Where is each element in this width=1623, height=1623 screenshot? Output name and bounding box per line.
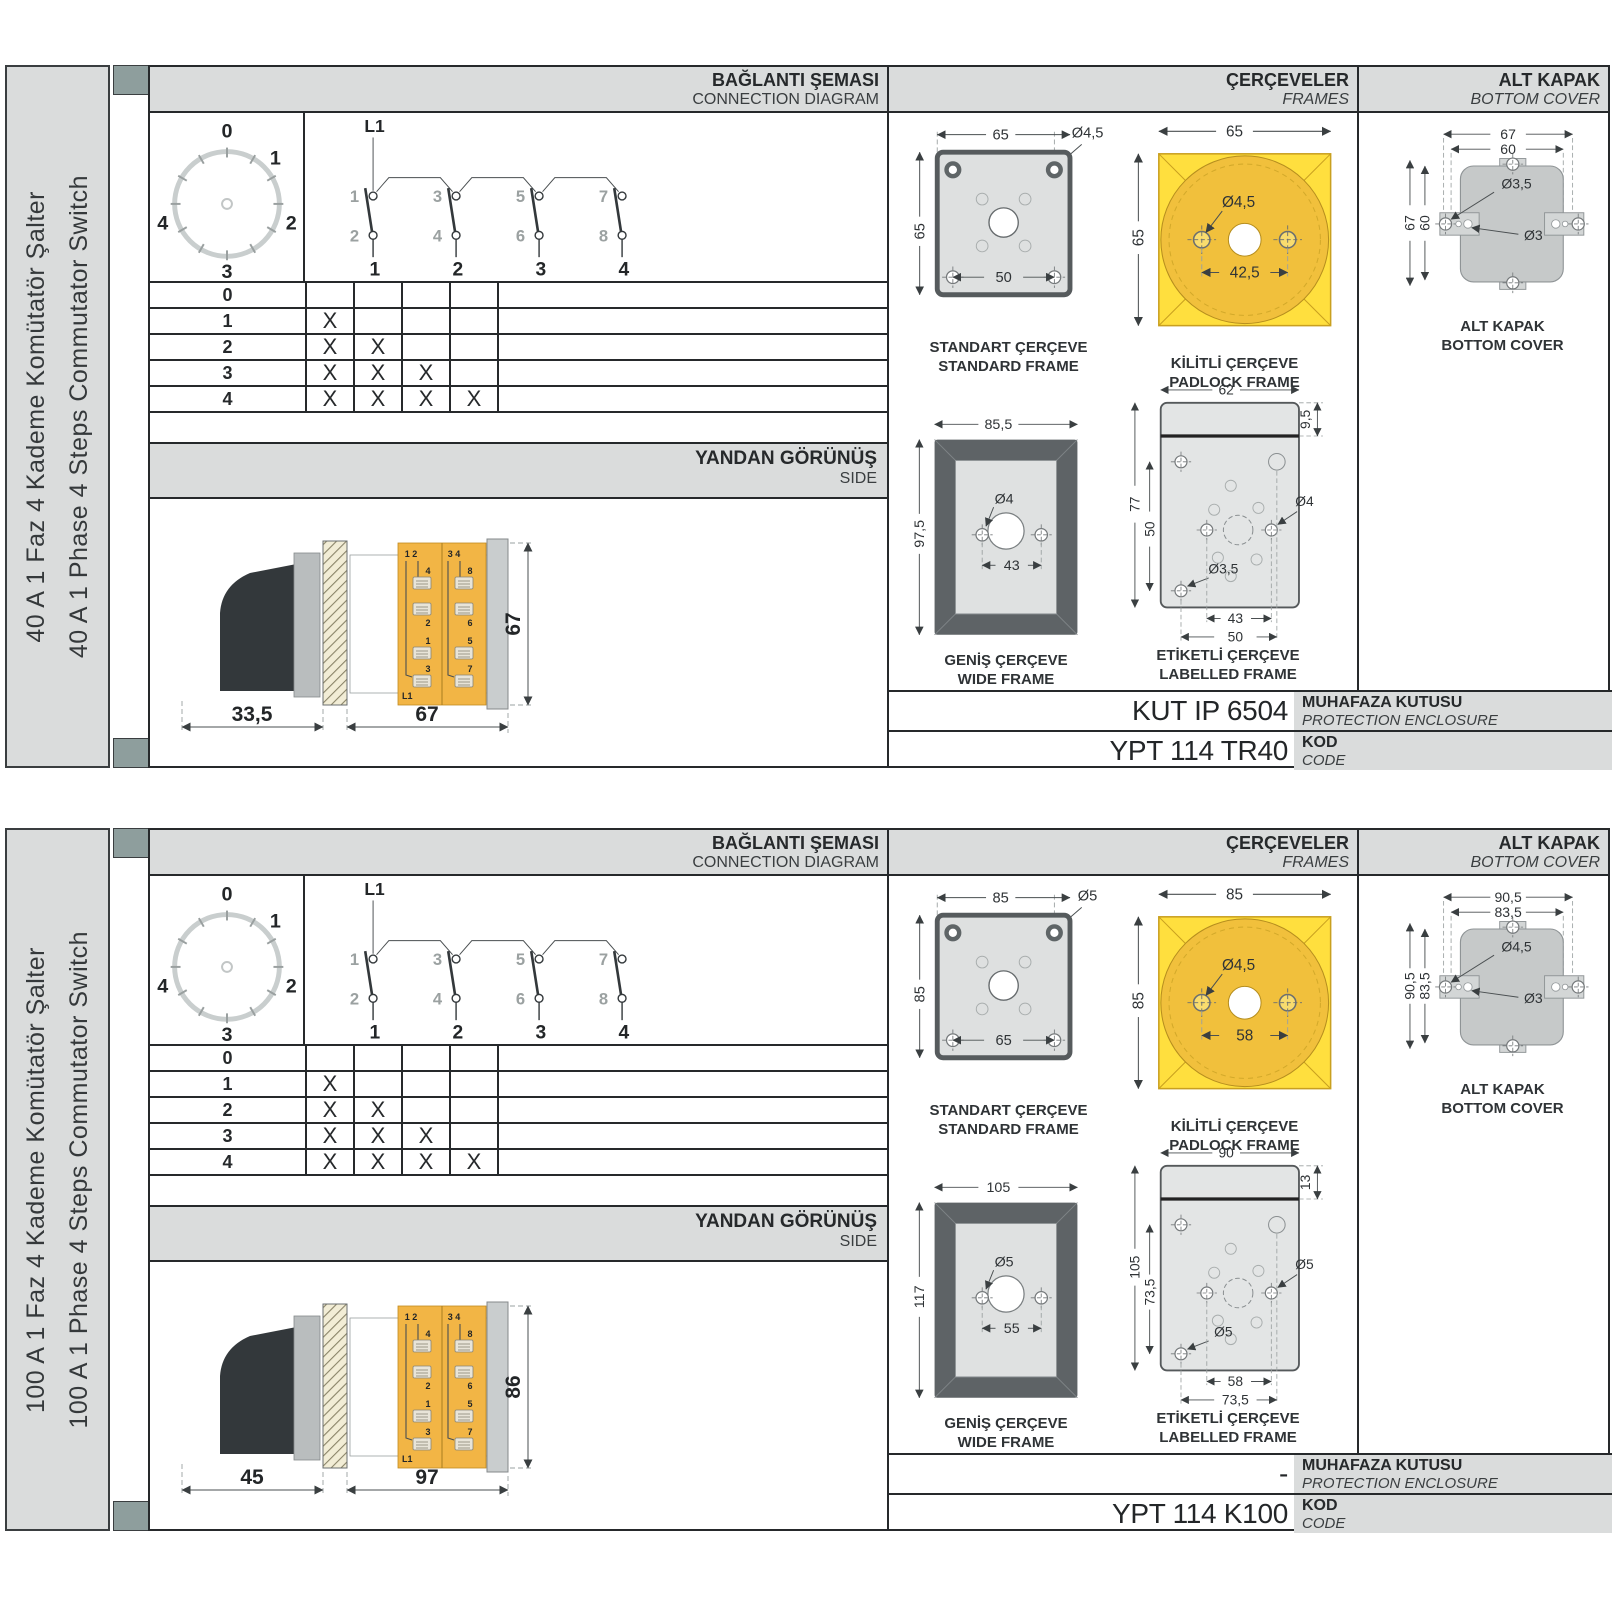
dial-pos-1: 1 xyxy=(269,147,280,169)
table-row: 0 xyxy=(150,283,887,309)
column-divider-right xyxy=(1357,67,1359,690)
product-title-tr: 40 A 1 Faz 4 Kademe Komütatör Şalter xyxy=(22,191,51,643)
contact-5: 5 xyxy=(516,187,525,206)
side-view-drawing: 1 2 3 4 4 2 1 3 8 6 5 7 L1 xyxy=(164,505,764,767)
enclosure-value: - xyxy=(887,1455,1294,1493)
mark-cell: X xyxy=(401,1124,449,1148)
pad-dim-height: 65 xyxy=(1130,229,1147,246)
pad-hole-label: Ø4,5 xyxy=(1222,194,1255,211)
side-dim-handle: 33,5 xyxy=(232,703,273,726)
wide-frame-caption: GENİŞ ÇERÇEVE WIDE FRAME xyxy=(906,651,1106,689)
code-label-tr: KOD xyxy=(1302,733,1612,752)
header-bottom-cover: ALT KAPAK BOTTOM COVER xyxy=(1357,830,1608,874)
enclosure-value: KUT IP 6504 xyxy=(887,692,1294,730)
standard-frame-caption-tr: STANDART ÇERÇEVE xyxy=(906,338,1111,357)
dial-pos-1: 1 xyxy=(269,910,280,932)
pole-2: 2 xyxy=(452,1023,463,1042)
position-label: 3 xyxy=(150,1124,305,1148)
side-dim-handle: 45 xyxy=(240,1466,264,1489)
position-label: 1 xyxy=(150,309,305,333)
terminal-2: 2 xyxy=(425,618,430,628)
header-frames-en: FRAMES xyxy=(889,91,1349,109)
mark-cell: X xyxy=(353,1150,401,1174)
header-frames-tr: ÇERÇEVELER xyxy=(889,833,1349,854)
contact-4: 4 xyxy=(433,226,443,245)
filler-cell xyxy=(497,387,887,411)
product-title-tr: 100 A 1 Faz 4 Kademe Komütatör Şalter xyxy=(22,947,51,1413)
terminal-l1: L1 xyxy=(402,1454,413,1464)
contact-source-label: L1 xyxy=(364,879,385,899)
labelled-frame-caption: ETİKETLİ ÇERÇEVE LABELLED FRAME xyxy=(1122,1409,1334,1447)
catalog-page: 40 A 1 Faz 4 Kademe Komütatör Şalter 40 … xyxy=(0,0,1623,1623)
datasheet-grid: BAĞLANTI ŞEMASI CONNECTION DIAGRAM ÇERÇE… xyxy=(148,828,1610,1531)
header-connection-diagram: BAĞLANTI ŞEMASI CONNECTION DIAGRAM xyxy=(150,67,887,111)
position-label: 4 xyxy=(150,1150,305,1174)
code-label-tr: KOD xyxy=(1302,1496,1612,1515)
mark-cell: X xyxy=(401,387,449,411)
table-row: 4 X X X X xyxy=(150,387,887,413)
enclosure-label-tr: MUHAFAZA KUTUSU xyxy=(1302,1456,1612,1475)
mark-cell xyxy=(449,309,497,333)
pole-1: 1 xyxy=(369,1023,380,1042)
std-dim-width: 65 xyxy=(993,128,1009,144)
mark-cell xyxy=(449,335,497,359)
bc-dim-h2: 83,5 xyxy=(1417,972,1433,999)
side-view-drawing: 1 2 3 4 4 2 1 3 8 6 5 7 L1 xyxy=(164,1268,764,1530)
wide-frame-caption-en: WIDE FRAME xyxy=(906,1433,1106,1452)
binding-square-top xyxy=(113,65,151,95)
terminal-4: 4 xyxy=(425,1329,430,1339)
header-cover-en: BOTTOM COVER xyxy=(1359,91,1600,109)
mark-cell: X xyxy=(353,1098,401,1122)
mark-cell: X xyxy=(353,361,401,385)
bottom-cover-caption: ALT KAPAK BOTTOM COVER xyxy=(1395,1080,1610,1118)
pole-1: 1 xyxy=(369,260,380,279)
switch-dial-cell: 0 1 2 3 4 xyxy=(150,876,305,1044)
lab-dim-inner-height: 50 xyxy=(1141,521,1157,537)
table-row: 2 X X xyxy=(150,335,887,361)
switch-dial-cell: 0 1 2 3 4 xyxy=(150,113,305,281)
header-cover-tr: ALT KAPAK xyxy=(1359,833,1600,854)
contact-diagram: L1 xyxy=(319,113,864,279)
bc-dim-h1: 67 xyxy=(1402,215,1418,231)
terminal-l1: L1 xyxy=(402,691,413,701)
table-row: 1 X xyxy=(150,1072,887,1098)
mark-cell xyxy=(401,309,449,333)
wide-dim-width: 105 xyxy=(986,1180,1010,1196)
position-table: 0 1 X 2 X X xyxy=(150,1046,887,1176)
standard-frame-caption-en: STANDARD FRAME xyxy=(906,1120,1111,1139)
mark-cell xyxy=(353,1072,401,1096)
terminal-6: 6 xyxy=(467,1381,472,1391)
figure-bottom-cover: 67 60 67 60 xyxy=(1395,123,1610,355)
contact-7: 7 xyxy=(599,187,608,206)
mark-cell xyxy=(353,283,401,307)
connection-diagram-row: 0 1 2 3 4 L1 xyxy=(150,876,887,1046)
product-panel: 40 A 1 Faz 4 Kademe Komütatör Şalter 40 … xyxy=(5,65,1605,768)
pad-dim-width: 65 xyxy=(1226,123,1243,140)
labelled-frame-caption-tr: ETİKETLİ ÇERÇEVE xyxy=(1122,1409,1334,1428)
mark-cell xyxy=(401,335,449,359)
contact-1: 1 xyxy=(350,187,359,206)
contact-8: 8 xyxy=(599,989,608,1008)
contact-6: 6 xyxy=(516,989,525,1008)
enclosure-label-en: PROTECTION ENCLOSURE xyxy=(1302,712,1612,729)
position-label: 0 xyxy=(150,1046,305,1070)
side-dim-height: 67 xyxy=(502,612,525,635)
dial-pos-0: 0 xyxy=(221,884,232,906)
table-row: 3 X X X xyxy=(150,1124,887,1150)
mark-cell: X xyxy=(305,1098,353,1122)
bc-dim-h2: 60 xyxy=(1417,215,1433,231)
mark-cell xyxy=(449,1046,497,1070)
header-connection-tr: BAĞLANTI ŞEMASI xyxy=(150,70,879,91)
table-row: 0 xyxy=(150,1046,887,1072)
wide-dim-height: 97,5 xyxy=(912,520,928,548)
code-label-en: CODE xyxy=(1302,752,1612,769)
mark-cell: X xyxy=(449,387,497,411)
bc-hole-b-label: Ø3 xyxy=(1524,990,1543,1006)
contact-1: 1 xyxy=(350,950,359,969)
bottom-cover-caption-en: BOTTOM COVER xyxy=(1395,1099,1610,1118)
section-header-band: BAĞLANTI ŞEMASI CONNECTION DIAGRAM ÇERÇE… xyxy=(150,830,1608,876)
header-connection-en: CONNECTION DIAGRAM xyxy=(150,91,879,109)
table-row: 4 X X X X xyxy=(150,1150,887,1176)
wide-dim-width: 85,5 xyxy=(984,417,1012,433)
figure-standard-frame: 85 Ø5 85 65 STANDART ÇERÇEVE STANDARD FR… xyxy=(906,884,1111,1139)
mark-cell: X xyxy=(449,1150,497,1174)
bc-dim-w2: 83,5 xyxy=(1494,904,1521,920)
figure-standard-frame: 65 Ø4,5 65 50 STANDART ÇERÇEVE STANDARD … xyxy=(906,121,1111,376)
code-value: YPT 114 TR40 xyxy=(887,732,1294,770)
dial-pos-3: 3 xyxy=(221,261,232,281)
mark-cell: X xyxy=(305,1072,353,1096)
terminal-7: 7 xyxy=(467,1427,472,1437)
header-connection-diagram: BAĞLANTI ŞEMASI CONNECTION DIAGRAM xyxy=(150,830,887,874)
header-bottom-cover: ALT KAPAK BOTTOM COVER xyxy=(1357,67,1608,111)
contact-2: 2 xyxy=(350,989,359,1008)
enclosure-row: - MUHAFAZA KUTUSU PROTECTION ENCLOSURE xyxy=(887,1453,1612,1493)
mark-cell: X xyxy=(305,1124,353,1148)
bc-dim-h1: 90,5 xyxy=(1402,972,1418,999)
bottom-cover-drawing: 67 60 67 60 xyxy=(1395,123,1610,315)
side-view-figure: 1 2 3 4 4 2 1 3 8 6 5 7 L1 xyxy=(164,505,764,767)
contact-4: 4 xyxy=(433,989,443,1008)
side-header-tr: YANDAN GÖRÜNÜŞ xyxy=(150,448,877,470)
wide-frame-caption: GENİŞ ÇERÇEVE WIDE FRAME xyxy=(906,1414,1106,1452)
pad-dim-inner: 58 xyxy=(1236,1028,1253,1045)
table-row: 3 X X X xyxy=(150,361,887,387)
lab-dim-inner-height: 73,5 xyxy=(1141,1278,1157,1305)
code-row: YPT 114 TR40 KOD CODE xyxy=(887,730,1612,770)
datasheet-grid: BAĞLANTI ŞEMASI CONNECTION DIAGRAM ÇERÇE… xyxy=(148,65,1610,768)
contact-7: 7 xyxy=(599,950,608,969)
side-dim-body: 97 xyxy=(415,1466,438,1489)
contact-diagram-cell: L1 xyxy=(305,876,887,1044)
enclosure-label-en: PROTECTION ENCLOSURE xyxy=(1302,1475,1612,1492)
std-hole-label: Ø4,5 xyxy=(1072,126,1104,142)
bottom-cover-drawing: 90,5 83,5 90,5 83,5 xyxy=(1395,886,1610,1078)
bottom-cover-caption: ALT KAPAK BOTTOM COVER xyxy=(1395,317,1610,355)
code-value: YPT 114 K100 xyxy=(887,1495,1294,1533)
wide-dim-height: 117 xyxy=(912,1285,928,1308)
dial-pos-2: 2 xyxy=(285,976,296,998)
std-dim-inner: 50 xyxy=(995,270,1011,286)
terminal-1: 1 xyxy=(425,1399,430,1409)
terminal-col2-header: 3 4 xyxy=(448,549,461,559)
bc-hole-a-label: Ø4,5 xyxy=(1501,938,1532,954)
standard-frame-caption: STANDART ÇERÇEVE STANDARD FRAME xyxy=(906,1101,1111,1139)
padlock-frame-caption-tr: KİLİTLİ ÇERÇEVE xyxy=(1122,1117,1347,1136)
standard-frame-caption-tr: STANDART ÇERÇEVE xyxy=(906,1101,1111,1120)
terminal-col2-header: 3 4 xyxy=(448,1312,461,1322)
mark-cell: X xyxy=(401,1150,449,1174)
mark-cell xyxy=(401,1046,449,1070)
wide-hole-label: Ø5 xyxy=(995,1254,1014,1270)
mark-cell xyxy=(449,1072,497,1096)
code-label-en: CODE xyxy=(1302,1515,1612,1532)
labelled-frame-caption-tr: ETİKETLİ ÇERÇEVE xyxy=(1122,646,1334,665)
terminal-8: 8 xyxy=(467,566,472,576)
dial-pos-4: 4 xyxy=(157,213,168,235)
wide-dim-inner: 43 xyxy=(1004,558,1020,574)
header-connection-en: CONNECTION DIAGRAM xyxy=(150,854,879,872)
lab-hole-right-label: Ø4 xyxy=(1295,493,1314,509)
side-view-header: YANDAN GÖRÜNÜŞ SIDE xyxy=(150,442,887,499)
lab-hole-bottom-label: Ø3,5 xyxy=(1208,560,1238,576)
labelled-frame-drawing: 62 9,5 77 50 Ø4 xyxy=(1122,377,1334,644)
product-sidebar: 40 A 1 Faz 4 Kademe Komütatör Şalter 40 … xyxy=(5,65,110,768)
product-panel: 100 A 1 Faz 4 Kademe Komütatör Şalter 10… xyxy=(5,828,1605,1531)
terminal-3: 3 xyxy=(425,1427,430,1437)
bottom-cover-caption-tr: ALT KAPAK xyxy=(1395,1080,1610,1099)
lab-dim-width: 62 xyxy=(1218,382,1233,398)
binding-square-bottom xyxy=(113,1501,151,1531)
wide-frame-drawing: 85,5 97,5 Ø4 43 xyxy=(906,411,1106,649)
labelled-frame-caption-en: LABELLED FRAME xyxy=(1122,1428,1334,1447)
filler-cell xyxy=(497,1046,887,1070)
lab-hole-right-label: Ø5 xyxy=(1295,1256,1314,1272)
contact-diagram: L1 xyxy=(319,876,864,1042)
contact-8: 8 xyxy=(599,226,608,245)
product-sidebar: 100 A 1 Faz 4 Kademe Komütatör Şalter 10… xyxy=(5,828,110,1531)
filler-cell xyxy=(497,1072,887,1096)
lab-dim-height: 105 xyxy=(1127,1255,1143,1278)
header-cover-en: BOTTOM COVER xyxy=(1359,854,1600,872)
padlock-frame-caption-tr: KİLİTLİ ÇERÇEVE xyxy=(1122,354,1347,373)
std-dim-height: 65 xyxy=(913,223,929,239)
wide-frame-caption-tr: GENİŞ ÇERÇEVE xyxy=(906,1414,1106,1433)
filler-cell xyxy=(497,1098,887,1122)
terminal-5: 5 xyxy=(467,1399,472,1409)
mark-cell xyxy=(401,1098,449,1122)
enclosure-row: KUT IP 6504 MUHAFAZA KUTUSU PROTECTION E… xyxy=(887,690,1612,730)
terminal-2: 2 xyxy=(425,1381,430,1391)
figure-wide-frame: 85,5 97,5 Ø4 43 xyxy=(906,411,1106,689)
lab-hole-bottom-label: Ø5 xyxy=(1214,1323,1233,1339)
mark-cell xyxy=(353,309,401,333)
column-divider-left xyxy=(887,830,889,1529)
bc-dim-w1: 67 xyxy=(1500,126,1516,142)
terminal-6: 6 xyxy=(467,618,472,628)
bc-dim-w2: 60 xyxy=(1500,141,1516,157)
terminal-1: 1 xyxy=(425,636,430,646)
side-view-figure: 1 2 3 4 4 2 1 3 8 6 5 7 L1 xyxy=(164,1268,764,1530)
labelled-frame-caption: ETİKETLİ ÇERÇEVE LABELLED FRAME xyxy=(1122,646,1334,684)
filler-cell xyxy=(497,335,887,359)
wide-dim-inner: 55 xyxy=(1004,1321,1020,1337)
mark-cell: X xyxy=(305,387,353,411)
lab-dim-2: 50 xyxy=(1228,629,1244,645)
filler-cell xyxy=(497,283,887,307)
bc-hole-b-label: Ø3 xyxy=(1524,227,1543,243)
standard-frame-caption-en: STANDARD FRAME xyxy=(906,357,1111,376)
std-dim-width: 85 xyxy=(993,891,1009,907)
enclosure-label: MUHAFAZA KUTUSU PROTECTION ENCLOSURE xyxy=(1294,1455,1612,1493)
position-label: 2 xyxy=(150,1098,305,1122)
enclosure-label-tr: MUHAFAZA KUTUSU xyxy=(1302,693,1612,712)
enclosure-label: MUHAFAZA KUTUSU PROTECTION ENCLOSURE xyxy=(1294,692,1612,730)
filler-cell xyxy=(497,1124,887,1148)
mark-cell xyxy=(401,283,449,307)
figure-wide-frame: 105 117 Ø5 55 G xyxy=(906,1174,1106,1452)
mark-cell: X xyxy=(305,335,353,359)
bc-hole-a-label: Ø3,5 xyxy=(1501,175,1532,191)
binding-square-bottom xyxy=(113,738,151,768)
standard-frame-drawing: 65 Ø4,5 65 50 xyxy=(906,121,1111,336)
wide-frame-caption-en: WIDE FRAME xyxy=(906,670,1106,689)
switch-dial-diagram: 0 1 2 3 4 xyxy=(152,113,302,281)
dial-pos-3: 3 xyxy=(221,1024,232,1044)
standard-frame-caption: STANDART ÇERÇEVE STANDARD FRAME xyxy=(906,338,1111,376)
column-divider-left xyxy=(887,67,889,766)
product-title-en: 40 A 1 Phase 4 Steps Commutator Switch xyxy=(65,175,94,658)
connection-diagram-row: 0 1 2 3 4 L1 xyxy=(150,113,887,283)
table-row: 1 X xyxy=(150,309,887,335)
mark-cell: X xyxy=(353,387,401,411)
mark-cell: X xyxy=(305,309,353,333)
contact-3: 3 xyxy=(433,187,442,206)
labelled-frame-drawing: 90 13 105 73,5 xyxy=(1122,1140,1334,1407)
side-view-header: YANDAN GÖRÜNÜŞ SIDE xyxy=(150,1205,887,1262)
side-header-en: SIDE xyxy=(150,470,877,488)
dial-pos-2: 2 xyxy=(285,213,296,235)
table-row: 2 X X xyxy=(150,1098,887,1124)
figure-bottom-cover: 90,5 83,5 90,5 83,5 xyxy=(1395,886,1610,1118)
position-label: 2 xyxy=(150,335,305,359)
mark-cell xyxy=(401,1072,449,1096)
lab-dim-width: 90 xyxy=(1218,1145,1234,1161)
section-header-band: BAĞLANTI ŞEMASI CONNECTION DIAGRAM ÇERÇE… xyxy=(150,67,1608,113)
contact-source-label: L1 xyxy=(364,116,385,136)
bottom-cover-caption-tr: ALT KAPAK xyxy=(1395,317,1610,336)
column-divider-right xyxy=(1357,830,1359,1453)
contact-3: 3 xyxy=(433,950,442,969)
lab-dim-1: 43 xyxy=(1228,610,1244,626)
labelled-frame-caption-en: LABELLED FRAME xyxy=(1122,665,1334,684)
figure-padlock-frame: 65 65 Ø4,5 xyxy=(1122,117,1347,392)
std-dim-height: 85 xyxy=(913,986,929,1002)
header-frames-tr: ÇERÇEVELER xyxy=(889,70,1349,91)
code-row: YPT 114 K100 KOD CODE xyxy=(887,1493,1612,1533)
terminal-7: 7 xyxy=(467,664,472,674)
pole-3: 3 xyxy=(535,1023,546,1042)
terminal-8: 8 xyxy=(467,1329,472,1339)
padlock-frame-drawing: 85 85 Ø4,5 xyxy=(1122,880,1347,1115)
padlock-frame-drawing: 65 65 Ø4,5 xyxy=(1122,117,1347,352)
lab-dim-2: 73,5 xyxy=(1222,1392,1249,1408)
position-label: 4 xyxy=(150,387,305,411)
lab-dim-height: 77 xyxy=(1127,497,1143,512)
code-label: KOD CODE xyxy=(1294,1495,1612,1533)
position-label: 1 xyxy=(150,1072,305,1096)
binding-square-top xyxy=(113,828,151,858)
product-title-en: 100 A 1 Phase 4 Steps Commutator Switch xyxy=(65,931,94,1429)
header-frames: ÇERÇEVELER FRAMES xyxy=(887,67,1357,111)
mark-cell: X xyxy=(401,361,449,385)
mark-cell: X xyxy=(353,1124,401,1148)
pole-3: 3 xyxy=(535,260,546,279)
mark-cell xyxy=(449,1098,497,1122)
wide-hole-label: Ø4 xyxy=(995,491,1014,507)
std-hole-label: Ø5 xyxy=(1078,889,1098,905)
standard-frame-drawing: 85 Ø5 85 65 xyxy=(906,884,1111,1099)
position-label: 0 xyxy=(150,283,305,307)
terminal-col1-header: 1 2 xyxy=(405,1312,418,1322)
mark-cell: X xyxy=(305,361,353,385)
header-frames: ÇERÇEVELER FRAMES xyxy=(887,830,1357,874)
header-connection-tr: BAĞLANTI ŞEMASI xyxy=(150,833,879,854)
mark-cell xyxy=(449,283,497,307)
code-label: KOD CODE xyxy=(1294,732,1612,770)
pole-4: 4 xyxy=(618,260,629,279)
mark-cell xyxy=(305,1046,353,1070)
pole-2: 2 xyxy=(452,260,463,279)
side-header-en: SIDE xyxy=(150,1233,877,1251)
figure-labelled-frame: 90 13 105 73,5 xyxy=(1122,1140,1334,1447)
dial-pos-4: 4 xyxy=(157,976,168,998)
side-header-tr: YANDAN GÖRÜNÜŞ xyxy=(150,1211,877,1233)
position-label: 3 xyxy=(150,361,305,385)
lab-dim-1: 58 xyxy=(1228,1373,1244,1389)
pole-4: 4 xyxy=(618,1023,629,1042)
contact-6: 6 xyxy=(516,226,525,245)
header-cover-tr: ALT KAPAK xyxy=(1359,70,1600,91)
pad-dim-height: 85 xyxy=(1130,992,1147,1009)
bottom-cover-caption-en: BOTTOM COVER xyxy=(1395,336,1610,355)
std-dim-inner: 65 xyxy=(995,1033,1011,1049)
pad-dim-inner: 42,5 xyxy=(1230,265,1260,282)
contact-diagram-cell: L1 xyxy=(305,113,887,281)
mark-cell xyxy=(353,1046,401,1070)
switch-dial-diagram: 0 1 2 3 4 xyxy=(152,876,302,1044)
mark-cell: X xyxy=(353,335,401,359)
side-dim-height: 86 xyxy=(502,1375,525,1398)
terminal-5: 5 xyxy=(467,636,472,646)
contact-5: 5 xyxy=(516,950,525,969)
mark-cell xyxy=(305,283,353,307)
mark-cell xyxy=(449,1124,497,1148)
mark-cell xyxy=(449,361,497,385)
pad-hole-label: Ø4,5 xyxy=(1222,957,1255,974)
figure-labelled-frame: 62 9,5 77 50 Ø4 xyxy=(1122,377,1334,684)
header-frames-en: FRAMES xyxy=(889,854,1349,872)
contact-2: 2 xyxy=(350,226,359,245)
mark-cell: X xyxy=(305,1150,353,1174)
wide-frame-drawing: 105 117 Ø5 55 xyxy=(906,1174,1106,1412)
terminal-4: 4 xyxy=(425,566,430,576)
position-table: 0 1 X 2 X X xyxy=(150,283,887,413)
